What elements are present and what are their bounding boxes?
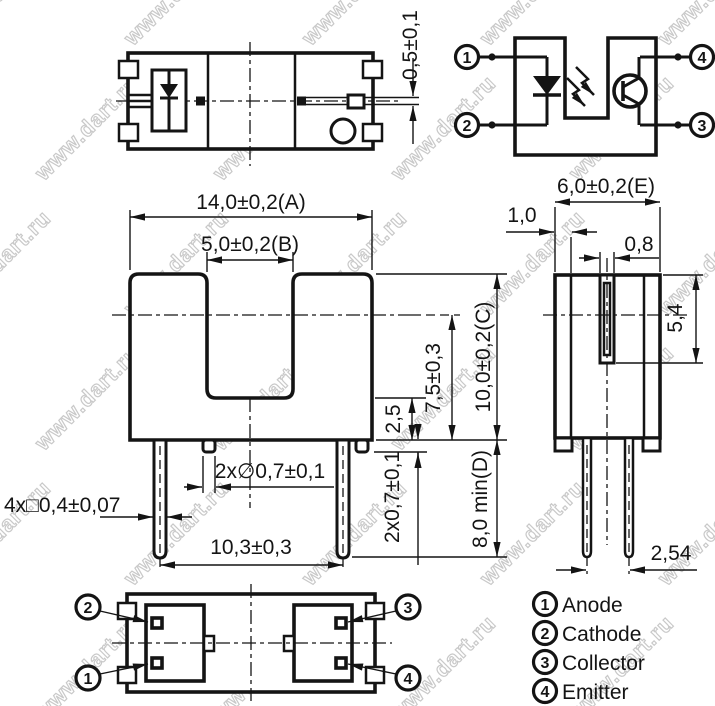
legend-pin-4-number: 4 (541, 684, 550, 701)
side-view: 6,0±0,2(E) 1,0 0,8 5,4 2,54 (506, 175, 703, 574)
legend-pin-1-label: Anode (562, 594, 623, 617)
pin-3-number: 3 (698, 118, 707, 135)
lead-pin (154, 440, 166, 558)
aperture-mark (196, 97, 205, 106)
dim-lead-pitch-label: 10,3±0,3 (210, 536, 292, 559)
corner-notch (363, 124, 382, 141)
front-body (130, 274, 372, 440)
dim-width-label: 14,0±0,2(A) (196, 191, 306, 214)
dim-boss-height-label: 2x0,7±0,1 (381, 451, 404, 543)
legend-pin-3-number: 3 (541, 655, 550, 672)
dim-boss-dia-label: 2x∅0,7±0,1 (215, 460, 325, 483)
pin-pad (152, 658, 162, 668)
dim-slot-base-label: 2,5 (382, 404, 405, 433)
dim-pin-pitch-label: 2,54 (651, 542, 692, 565)
dim-slit-label: 0,5±0,1 (399, 10, 422, 80)
front-view: 14,0±0,2(A) 5,0±0,2(B) 2,5 7,5±0,3 10,0±… (4, 191, 507, 572)
dim-aperture-depth-label: 5,4 (664, 303, 687, 333)
side-pin (583, 438, 591, 557)
dim-center-to-base-label: 7,5±0,3 (422, 343, 445, 413)
sensor-window (348, 95, 364, 108)
technical-drawing: 0,5±0,1 1 2 (0, 0, 715, 706)
corner-notch (363, 61, 382, 78)
dim-lead-length-label: 8,0 min(D) (469, 450, 492, 548)
boss-pin (203, 440, 215, 452)
pin-3-number: 3 (404, 600, 413, 617)
pin-2-number: 2 (463, 118, 472, 135)
pin-4-number: 4 (698, 50, 707, 67)
dim-depth-label: 6,0±0,2(E) (557, 175, 655, 198)
legend-pin-3-label: Collector (562, 652, 645, 675)
side-foot (643, 438, 660, 451)
pin-1-number: 1 (463, 50, 472, 67)
corner-notch (119, 124, 138, 141)
pin-pad (152, 618, 162, 628)
side-foot (555, 438, 572, 451)
pin-4-number: 4 (404, 671, 413, 688)
aperture-mark (297, 97, 306, 106)
legend-pin-4-label: Emitter (562, 681, 629, 704)
legend-pin-2-number: 2 (541, 626, 550, 643)
top-view: 0,5±0,1 (116, 10, 422, 166)
pin-node-dot (674, 53, 681, 60)
legend-pin-1-number: 1 (541, 597, 550, 614)
drawing-sheet: www.dart.ruwww.dart.ruwww.dart.ruwww.dar… (0, 0, 715, 706)
bottom-view: 2 1 3 4 (76, 584, 420, 701)
dim-height-label: 10,0±0,2(C) (472, 302, 495, 413)
dim-aperture-label: 0,8 (624, 233, 653, 256)
pin-pad (336, 618, 346, 628)
side-pin (625, 438, 633, 557)
legend-pin-2-label: Cathode (562, 623, 641, 646)
pin-legend: 1 Anode 2 Cathode 3 Collector 4 Emitter (534, 593, 645, 705)
dim-wall-label: 1,0 (507, 204, 536, 227)
pin-node-dot (488, 121, 495, 128)
lead-pin (337, 440, 349, 558)
pin-2-number: 2 (84, 600, 93, 617)
dim-slot-label: 5,0±0,2(B) (201, 233, 299, 256)
pin-node-dot (674, 121, 681, 128)
schematic-view: 1 2 4 3 (456, 38, 714, 155)
dim-lead-square-label: 4x□0,4±0,07 (4, 494, 120, 517)
pin-1-number: 1 (84, 671, 93, 688)
corner-notch (119, 61, 138, 78)
pin-pad (336, 658, 346, 668)
boss-pin (356, 440, 368, 452)
pin-node-dot (488, 53, 495, 60)
